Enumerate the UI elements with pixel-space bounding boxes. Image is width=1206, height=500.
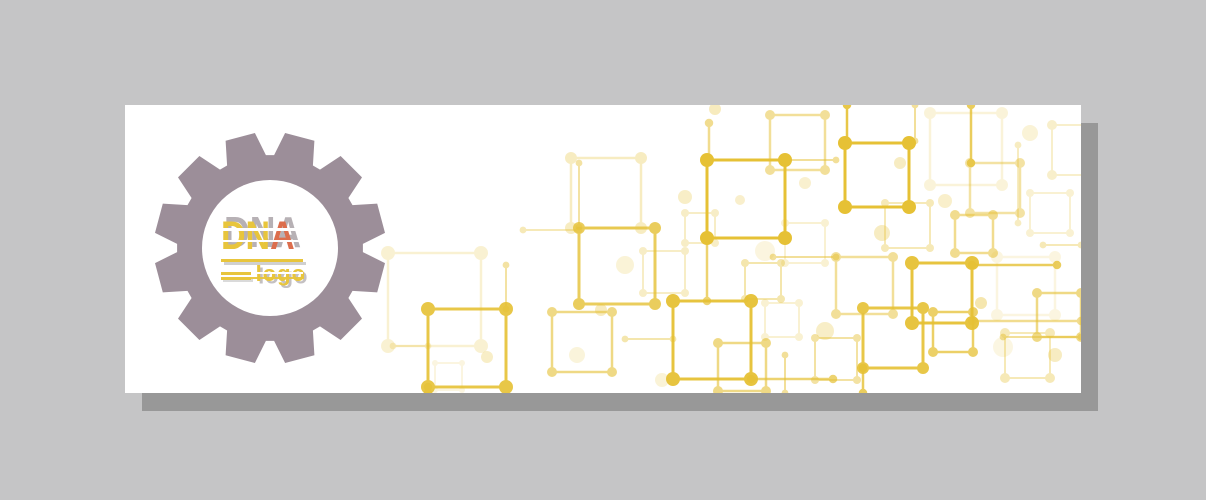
banner-card: DNA DNA logo xyxy=(125,105,1081,393)
logo-equals-line xyxy=(221,272,251,275)
logo-strike-line xyxy=(221,277,304,279)
logo-slice-line xyxy=(218,228,309,231)
logo-lockup: DNA DNA logo xyxy=(221,219,303,288)
logo-text-sub: logo xyxy=(256,261,306,287)
logo-sub-row: logo xyxy=(221,264,303,288)
logo-text-dna: DNA xyxy=(221,219,295,253)
logo-underline xyxy=(221,259,303,262)
logo-slice-line xyxy=(253,272,303,274)
logo-slice-line xyxy=(218,240,309,242)
page-background: DNA DNA logo xyxy=(0,0,1206,500)
logo-wordmark: DNA DNA xyxy=(221,219,303,255)
